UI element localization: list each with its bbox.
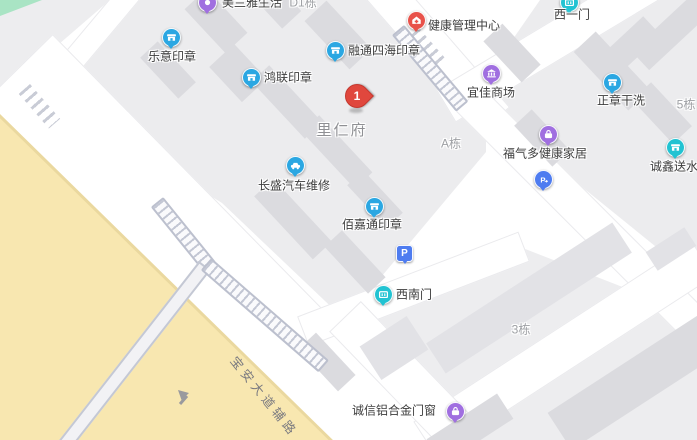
- building-label: 3栋: [512, 323, 531, 336]
- poi-label: 美兰雅生活: [222, 0, 282, 10]
- baijiatong-seal-icon: [365, 197, 384, 216]
- poi-label: 福气多健康家居: [503, 147, 587, 160]
- map-canvas[interactable]: 美兰雅生活乐意印章鸿联印章融通四海印章健康管理中心西一门宜佳商场正章干洗诚鑫送水…: [0, 0, 697, 440]
- southwest-gate-icon: [374, 285, 393, 304]
- poi-label: 佰嘉通印章: [342, 218, 402, 231]
- yijia-mall-icon: [482, 64, 501, 83]
- parking-entrance-icon: P: [534, 170, 553, 189]
- selected-place-marker[interactable]: 1: [340, 79, 374, 113]
- health-center-icon: [407, 11, 426, 30]
- marker-number: 1: [346, 85, 368, 107]
- poi-label: 西一门: [554, 8, 590, 21]
- poi-label: 诚鑫送水: [650, 160, 697, 173]
- svg-text:P: P: [540, 175, 545, 184]
- rongtong-seal-icon: [326, 41, 345, 60]
- marker-shadow: [349, 108, 363, 113]
- poi-label: 西南门: [396, 288, 432, 301]
- poi-label: 鸿联印章: [264, 71, 312, 84]
- building-label: A栋: [441, 137, 461, 150]
- leyi-seal-icon: [162, 28, 181, 47]
- poi-label: 乐意印章: [148, 50, 196, 63]
- poi-label: 正章干洗: [597, 94, 645, 107]
- fuqiduo-home-icon: [539, 125, 558, 144]
- honglian-seal-icon: [242, 68, 261, 87]
- building-label: D1栋: [289, 0, 316, 10]
- selected-place-label[interactable]: 里仁府: [316, 123, 367, 140]
- parking-icon: P: [396, 245, 413, 262]
- building-label: 5栋: [677, 98, 696, 111]
- poi-label: 诚信铝合金门窗: [352, 404, 436, 417]
- zhengzhang-dry-icon: [603, 73, 622, 92]
- lanya-life-icon: [198, 0, 217, 12]
- chengxin-water-icon: [666, 138, 685, 157]
- poi-layer: 美兰雅生活乐意印章鸿联印章融通四海印章健康管理中心西一门宜佳商场正章干洗诚鑫送水…: [0, 0, 697, 440]
- poi-label: 融通四海印章: [348, 44, 420, 57]
- chengxin-windows-icon: [446, 402, 465, 421]
- poi-label: 长盛汽车维修: [258, 179, 330, 192]
- poi-label: 健康管理中心: [428, 19, 500, 32]
- road-name-label: 宝安大道辅路: [226, 352, 303, 440]
- poi-label: 宜佳商场: [467, 86, 515, 99]
- changsheng-auto-icon: [286, 156, 305, 175]
